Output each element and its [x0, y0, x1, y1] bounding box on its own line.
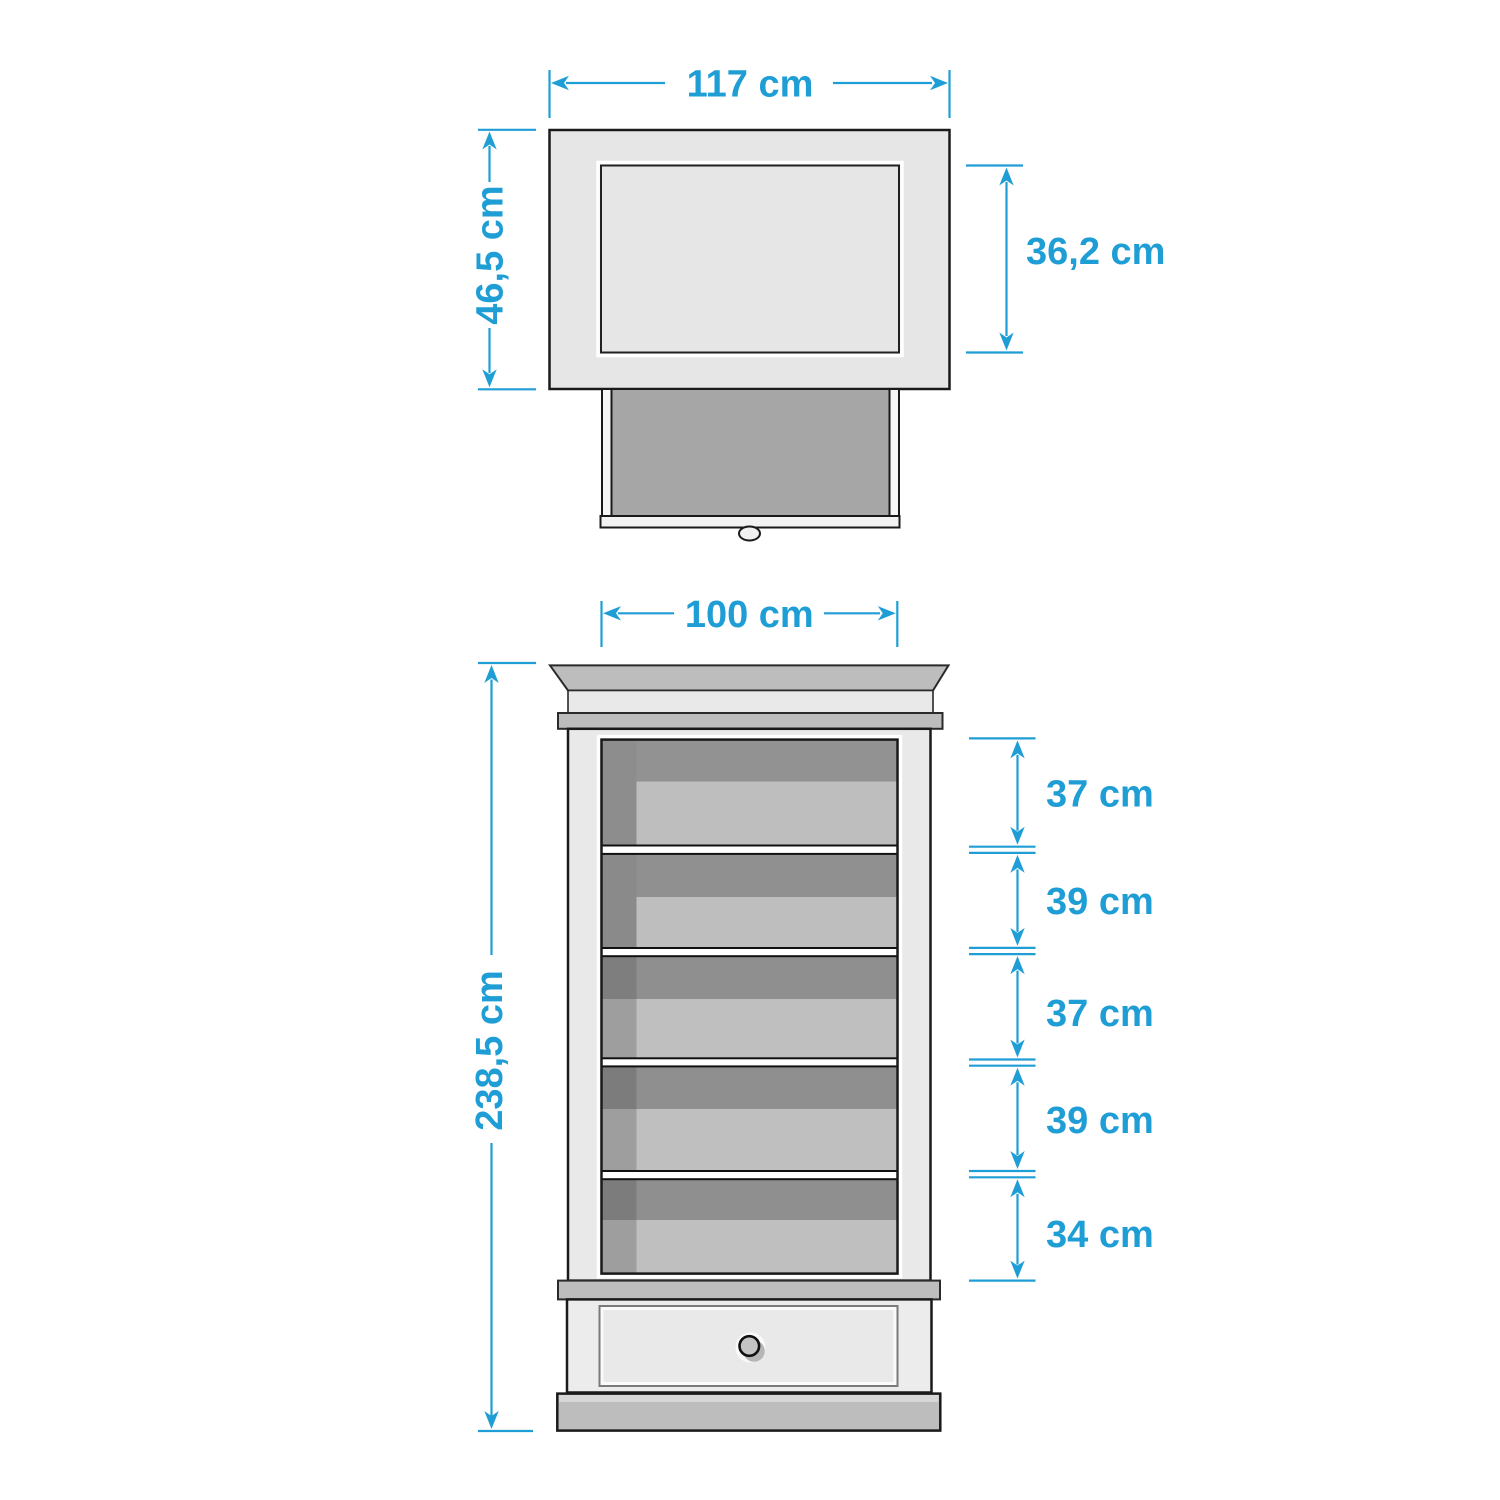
svg-text:37 cm: 37 cm — [1046, 773, 1154, 815]
svg-text:46,5 cm: 46,5 cm — [469, 185, 511, 324]
svg-text:238,5 cm: 238,5 cm — [469, 970, 511, 1131]
svg-text:117 cm: 117 cm — [687, 64, 814, 106]
svg-text:34 cm: 34 cm — [1046, 1214, 1154, 1256]
svg-text:39 cm: 39 cm — [1046, 1100, 1154, 1142]
svg-text:39 cm: 39 cm — [1046, 881, 1154, 923]
svg-text:37 cm: 37 cm — [1046, 993, 1154, 1035]
svg-text:36,2 cm: 36,2 cm — [1026, 231, 1165, 273]
svg-text:100 cm: 100 cm — [685, 594, 814, 636]
